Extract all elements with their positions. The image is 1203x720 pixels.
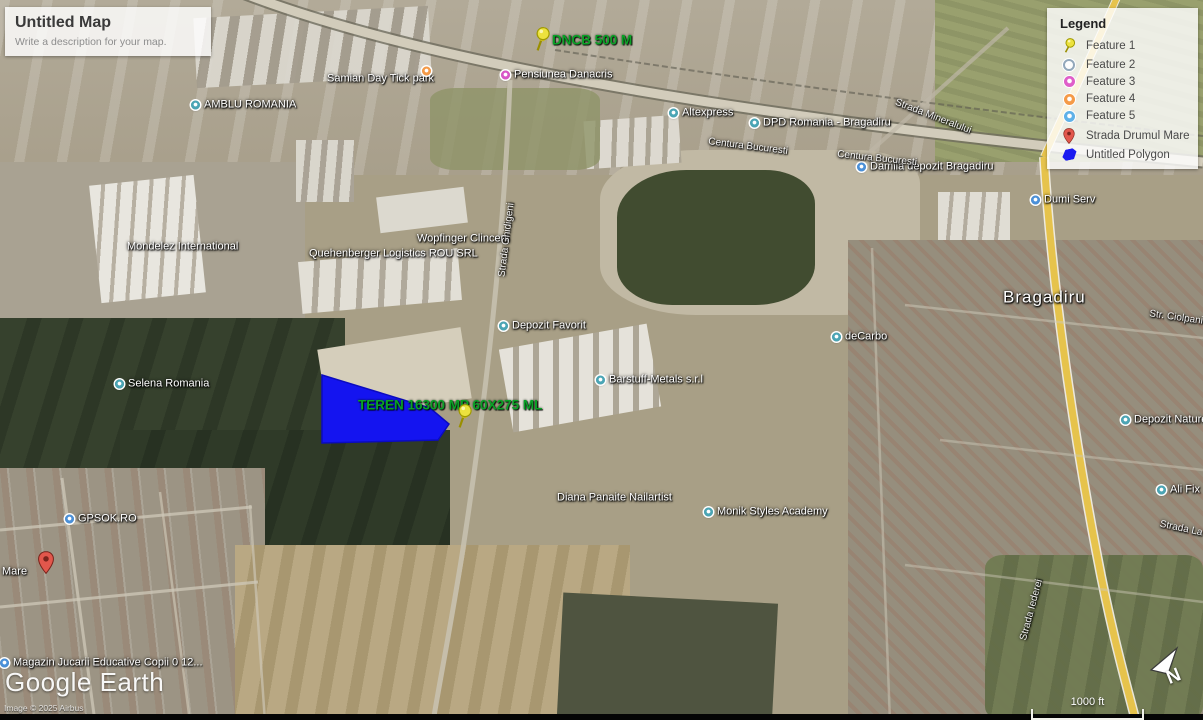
label-text: Pensiunea Danacris [514, 70, 612, 81]
pushpin-icon[interactable] [455, 404, 473, 435]
poi-dot-icon[interactable] [501, 71, 510, 80]
label-text: DPD Romania - Bragadiru [763, 118, 891, 129]
label-text: Quehenberger Logistics ROU SRL [309, 249, 478, 260]
label-text: Mondelez International [127, 242, 238, 253]
poi-dot-icon[interactable] [704, 508, 713, 517]
imagery-attribution: Image © 2025 Airbus [4, 703, 84, 713]
label-text: Wopfinger Clinceni [417, 234, 509, 245]
label-text: Strada Mineralului [894, 98, 973, 136]
legend-item-label: Feature 3 [1086, 76, 1135, 88]
road-label: Strada Ghidigeni [497, 202, 516, 277]
label-text: deCarbo [845, 332, 887, 343]
place-label[interactable]: Quehenberger Logistics ROU SRL [309, 249, 478, 260]
place-label[interactable]: Monik Styles Academy [704, 507, 828, 518]
label-text: AMBLU ROMANIA [204, 100, 296, 111]
label-text: Dumi Serv [1044, 195, 1095, 206]
circle-dot-icon [1061, 111, 1077, 122]
city-label: Bragadiru [1003, 289, 1086, 306]
circle-dot-icon [1061, 94, 1077, 105]
place-label[interactable]: Pensiunea Danacris [501, 70, 612, 81]
label-text: Bragadiru [1003, 289, 1086, 306]
poi-dot-icon[interactable] [832, 333, 841, 342]
label-text: Depozit Favorit [512, 321, 586, 332]
map-annotations-layer: DNCB 500 MTEREN 16300 MP 60X275 MLSamian… [0, 0, 1203, 720]
place-label[interactable]: Wopfinger Clinceni [417, 234, 509, 245]
road-label: Str. Ciolpani [1149, 309, 1203, 326]
poi-dot-icon[interactable] [499, 322, 508, 331]
map-marker-icon [1061, 128, 1077, 144]
poi-dot-icon[interactable] [857, 163, 866, 172]
label-text: Diana Panaite Nailartist [557, 493, 672, 504]
place-label[interactable]: Diana Panaite Nailartist [557, 493, 672, 504]
place-label[interactable]: Depozit Nature [1121, 415, 1203, 426]
label-text: Selena Romania [128, 379, 209, 390]
poi-dot-icon[interactable] [422, 67, 431, 76]
label-text: GPSOK.RO [78, 514, 137, 525]
place-label[interactable]: deCarbo [832, 332, 887, 343]
place-label[interactable]: Mare [2, 567, 27, 578]
legend-item-label: Feature 5 [1086, 110, 1135, 122]
poi-dot-icon[interactable] [750, 119, 759, 128]
legend-item[interactable]: Feature 5 [1047, 108, 1198, 125]
poi-dot-icon[interactable] [1121, 416, 1130, 425]
label-text: Strada La [1159, 520, 1203, 539]
legend-item-label: Feature 4 [1086, 93, 1135, 105]
place-label[interactable]: GPSOK.RO [65, 514, 137, 525]
legend-item-label: Strada Drumul Mare [1086, 130, 1190, 142]
poi-dot-icon[interactable] [1157, 486, 1166, 495]
label-text: Str. Ciolpani [1149, 309, 1203, 326]
place-label[interactable]: AMBLU ROMANIA [191, 100, 296, 111]
legend-item[interactable]: Feature 2 [1047, 56, 1198, 73]
annotation-label[interactable]: DNCB 500 M [552, 33, 632, 47]
map-viewport[interactable]: DNCB 500 MTEREN 16300 MP 60X275 MLSamian… [0, 0, 1203, 720]
label-text: Samian Day Tick park [327, 74, 434, 85]
map-title[interactable]: Untitled Map [15, 14, 201, 32]
pushpin-icon[interactable] [533, 27, 551, 58]
place-label[interactable]: DPD Romania - Bragadiru [750, 118, 891, 129]
place-label[interactable]: Samian Day Tick park [327, 74, 434, 85]
pushpin-icon [1061, 38, 1077, 54]
road-label: Strada La [1159, 520, 1203, 539]
poi-dot-icon[interactable] [1031, 196, 1040, 205]
scale-line [1031, 709, 1144, 720]
label-text: Centura Bucuresti [708, 137, 789, 157]
legend-item[interactable]: Strada Drumul Mare [1047, 125, 1198, 146]
map-title-panel[interactable]: Untitled Map Write a description for you… [5, 7, 211, 56]
legend-item[interactable]: Feature 1 [1047, 35, 1198, 56]
poi-dot-icon[interactable] [669, 109, 678, 118]
legend-item-label: Feature 2 [1086, 59, 1135, 71]
legend-item[interactable]: Feature 3 [1047, 73, 1198, 90]
poi-dot-icon[interactable] [596, 376, 605, 385]
road-label: Strada Mineralului [894, 98, 973, 136]
legend-panel: Legend Feature 1Feature 2Feature 3Featur… [1047, 8, 1198, 169]
polygon-icon [1061, 149, 1077, 160]
legend-item[interactable]: Untitled Polygon [1047, 146, 1198, 163]
legend-title: Legend [1060, 16, 1198, 31]
poi-dot-icon[interactable] [65, 515, 74, 524]
label-text: Monik Styles Academy [717, 507, 828, 518]
label-text: Mare [2, 567, 27, 578]
legend-item-label: Feature 1 [1086, 40, 1135, 52]
label-text: Depozit Nature [1134, 415, 1203, 426]
google-earth-logo: Google Earth [5, 667, 164, 698]
circle-dot-icon [1061, 76, 1077, 87]
place-label[interactable] [422, 67, 431, 76]
label-text: Strada Ghidigeni [497, 202, 516, 277]
label-text: Strada Iederei [1019, 578, 1045, 641]
label-text: Altexpress [682, 108, 733, 119]
red-marker-icon[interactable] [38, 551, 54, 579]
place-label[interactable]: Dumi Serv [1031, 195, 1095, 206]
place-label[interactable]: Ali Fix [1157, 485, 1200, 496]
label-text: Ali Fix [1170, 485, 1200, 496]
road-label: Centura Bucuresti [708, 137, 789, 157]
label-text: TEREN 16300 MP 60X275 ML [358, 398, 542, 412]
place-label[interactable]: Altexpress [669, 108, 733, 119]
legend-item[interactable]: Feature 4 [1047, 91, 1198, 108]
poi-dot-icon[interactable] [115, 380, 124, 389]
legend-item-label: Untitled Polygon [1086, 149, 1170, 161]
place-label[interactable]: Selena Romania [115, 379, 209, 390]
map-description-placeholder[interactable]: Write a description for your map. [15, 36, 201, 48]
label-text: DNCB 500 M [552, 33, 632, 47]
poi-dot-icon[interactable] [191, 101, 200, 110]
label-text: Barstuff-Metals s.r.l [609, 375, 703, 386]
annotation-label[interactable]: TEREN 16300 MP 60X275 ML [358, 398, 542, 412]
bottom-black-bar [0, 714, 1203, 720]
road-label: Strada Iederei [1019, 578, 1045, 641]
place-label[interactable]: Depozit Favorit [499, 321, 586, 332]
place-label[interactable]: Barstuff-Metals s.r.l [596, 375, 703, 386]
scale-bar: 1000 ft [1031, 696, 1144, 720]
compass-indicator[interactable]: N [1149, 646, 1195, 696]
legend-items: Feature 1Feature 2Feature 3Feature 4Feat… [1047, 35, 1198, 163]
circle-ring-icon [1061, 59, 1077, 71]
scale-label: 1000 ft [1031, 696, 1144, 708]
place-label[interactable]: Mondelez International [127, 242, 238, 253]
